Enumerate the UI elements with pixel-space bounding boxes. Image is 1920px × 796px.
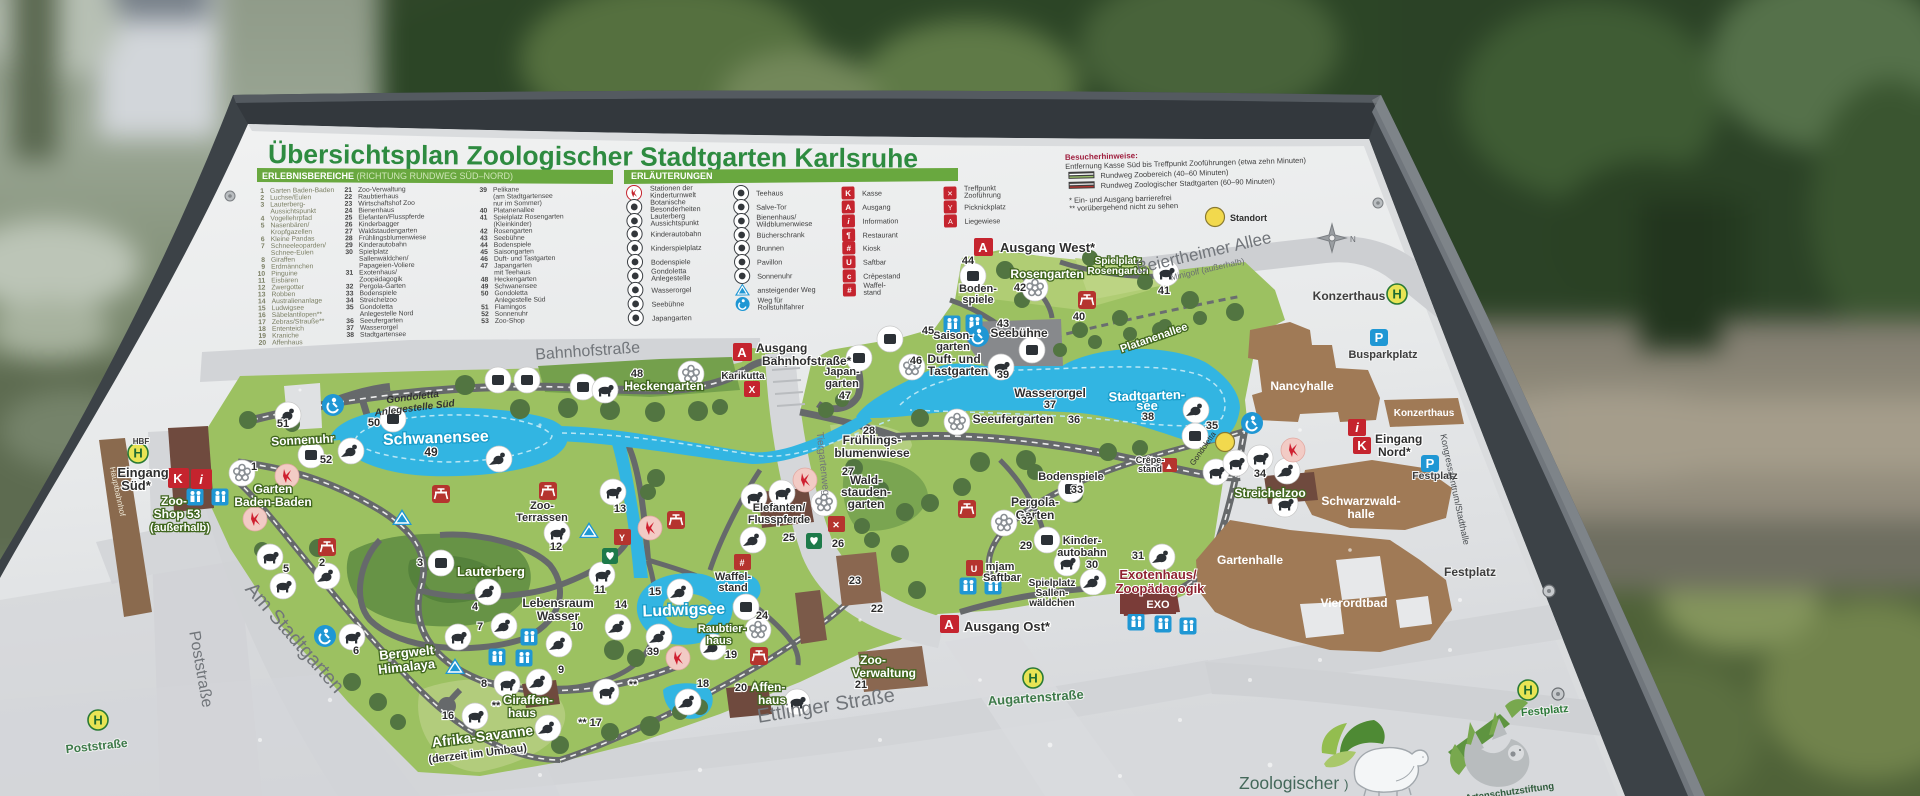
svg-text:41: 41 [480,214,488,221]
svg-text:Karikutta: Karikutta [721,371,765,382]
svg-text:Flusspferde: Flusspferde [748,514,810,526]
svg-text:39: 39 [647,646,659,658]
svg-text:Wildblumenwiese: Wildblumenwiese [756,219,812,229]
svg-text:Crêpestand: Crêpestand [863,271,900,281]
svg-text:45: 45 [922,325,934,337]
svg-text:Zoo-: Zoo- [860,653,886,667]
svg-text:19: 19 [725,649,737,661]
svg-text:Kinderautobahn: Kinderautobahn [651,229,702,239]
svg-text:Stadtgartensee: Stadtgartensee [360,331,406,339]
svg-text:Y: Y [948,205,953,212]
svg-text:HBF: HBF [133,437,150,446]
svg-text:Übersichtsplan Zoologischer St: Übersichtsplan Zoologischer Stadtgarten … [268,139,918,174]
svg-text:**: ** [629,679,638,691]
svg-text:36: 36 [1068,414,1080,426]
svg-text:Japangarten: Japangarten [652,313,692,323]
svg-text:Lauterberg: Lauterberg [457,564,525,579]
svg-text:Zoo-Shop: Zoo-Shop [495,317,525,324]
svg-text:A: A [944,617,954,632]
svg-text:K: K [1357,438,1367,453]
svg-text:50: 50 [368,417,380,429]
svg-text:Aussichtspunkt: Aussichtspunkt [650,218,698,228]
svg-text:Pergola-: Pergola- [1011,495,1059,509]
svg-text:garten: garten [825,378,859,390]
svg-text:Rosengarten: Rosengarten [1010,267,1083,281]
svg-text:Ludwigsee: Ludwigsee [642,601,725,621]
svg-text:#: # [847,244,852,253]
svg-text:35: 35 [346,304,354,311]
svg-text:Standort: Standort [1230,213,1267,223]
svg-text:haus: haus [706,635,732,647]
svg-text:halle: halle [1347,507,1375,521]
svg-text:31: 31 [1132,550,1144,562]
svg-text:22: 22 [871,603,883,615]
svg-text:A: A [845,203,851,212]
svg-text:ERLEBNISBEREICHE (RICHTUNG RUN: ERLEBNISBEREICHE (RICHTUNG RUNDWEG SÜD–N… [262,171,513,181]
svg-text:Lebensraum: Lebensraum [522,596,593,610]
svg-text:P: P [1375,330,1384,345]
svg-text:50: 50 [481,290,489,297]
svg-text:▲: ▲ [1165,461,1174,471]
svg-text:37: 37 [1044,399,1056,411]
svg-text:16: 16 [442,710,454,722]
svg-text:Streichelzoo: Streichelzoo [1234,486,1305,500]
svg-text:43: 43 [997,318,1009,330]
svg-text:U: U [971,564,978,574]
svg-text:haus: haus [508,706,536,720]
svg-text:** 17: ** 17 [578,717,602,729]
svg-text:Verwaltung: Verwaltung [852,666,916,680]
svg-text:46: 46 [910,355,922,367]
svg-text:39: 39 [997,369,1009,381]
svg-text:7: 7 [477,621,483,633]
svg-text:41: 41 [1158,285,1170,297]
svg-text:Zoo-: Zoo- [161,494,187,508]
svg-text:Picknickplatz: Picknickplatz [964,202,1006,212]
svg-text:garten: garten [848,497,885,511]
svg-text:5: 5 [283,563,289,575]
svg-text:¶: ¶ [846,231,851,240]
svg-text:#: # [847,286,852,295]
svg-text:stand: stand [863,288,881,297]
svg-text:28: 28 [863,425,875,437]
svg-text:47: 47 [480,263,488,270]
svg-text:Zoologischer ): Zoologischer ) [1239,773,1348,793]
svg-text:X: X [749,385,756,396]
svg-text:Busparkplatz: Busparkplatz [1348,349,1418,361]
svg-text:7: 7 [261,243,265,250]
svg-text:Ausgang: Ausgang [862,202,891,211]
svg-text:Shop 53: Shop 53 [154,507,201,521]
svg-text:40: 40 [1073,311,1085,323]
svg-text:Brunnen: Brunnen [757,243,784,252]
svg-text:11: 11 [594,584,606,596]
svg-text:Rollstuhlfahrer: Rollstuhlfahrer [758,302,805,312]
svg-text:i: i [199,472,203,487]
svg-text:Nancyhalle: Nancyhalle [1270,379,1334,393]
svg-text:A: A [737,345,747,360]
svg-text:Sonnenuhr: Sonnenuhr [757,271,793,280]
svg-text:38: 38 [1142,411,1154,423]
svg-text:Ausgang Ost*: Ausgang Ost* [964,619,1051,634]
svg-text:Raubtier-: Raubtier- [698,623,747,635]
svg-text:Liegewiese: Liegewiese [964,216,1000,226]
svg-text:Zoo-: Zoo- [530,500,554,512]
svg-text:U: U [846,258,852,267]
svg-text:stand: stand [718,582,747,594]
svg-text:24: 24 [756,610,769,622]
svg-text:9: 9 [558,664,564,676]
svg-text:stand: stand [1138,464,1162,474]
svg-text:8: 8 [481,678,487,690]
svg-text:15: 15 [649,586,661,598]
svg-text:autobahn: autobahn [1057,547,1107,559]
svg-text:blumenwiese: blumenwiese [834,446,910,460]
svg-text:Teehaus: Teehaus [756,188,784,197]
svg-text:32: 32 [1021,515,1033,527]
svg-text:18: 18 [697,678,709,690]
svg-text:5: 5 [261,222,265,229]
svg-text:20: 20 [735,682,747,694]
svg-text:4: 4 [472,601,479,613]
svg-text:Elefanten/: Elefanten/ [753,502,806,514]
svg-text:12: 12 [550,541,562,553]
svg-text:A: A [948,219,953,226]
svg-text:Konzerthaus: Konzerthaus [1394,408,1455,419]
svg-text:K: K [173,471,183,486]
svg-text:1: 1 [251,461,257,473]
svg-text:#: # [739,558,744,568]
svg-text:Zoopädagogik: Zoopädagogik [1116,581,1206,596]
svg-text:Kinderspielplatz: Kinderspielplatz [651,243,702,253]
svg-text:Eingang: Eingang [1375,432,1422,446]
svg-text:Ausgang West*: Ausgang West* [1000,240,1096,255]
svg-text:ERLÄUTERUNGEN: ERLÄUTERUNGEN [631,171,713,181]
svg-text:Affenhaus: Affenhaus [272,339,303,346]
svg-text:26: 26 [832,538,844,550]
svg-text:EXO: EXO [1146,599,1170,611]
svg-text:53: 53 [481,318,489,325]
svg-text:Kasse: Kasse [862,189,882,198]
svg-text:Y: Y [619,533,625,543]
svg-text:Tastgarten: Tastgarten [928,364,988,378]
svg-text:Schwarzwald-: Schwarzwald- [1321,494,1400,508]
svg-text:N: N [1350,235,1356,244]
svg-text:Wasserorgel: Wasserorgel [1014,386,1086,400]
svg-text:Salve-Tor: Salve-Tor [756,202,787,211]
svg-text:20: 20 [259,340,267,347]
svg-text:P: P [1426,456,1435,471]
svg-text:Seeufergarten: Seeufergarten [973,412,1054,426]
svg-text:25: 25 [783,532,795,544]
svg-text:(außerhalb): (außerhalb) [150,522,210,534]
svg-text:spiele: spiele [962,294,993,306]
svg-text:48: 48 [631,368,643,380]
svg-text:Kiosk: Kiosk [863,244,881,253]
svg-text:39: 39 [479,187,487,194]
svg-text:Bodenspiele: Bodenspiele [1038,471,1103,483]
svg-text:A: A [978,240,988,255]
svg-text:34: 34 [1254,468,1267,480]
svg-text:Pavillon: Pavillon [757,257,782,266]
svg-text:14: 14 [615,599,628,611]
svg-text:Heckengarten: Heckengarten [624,379,703,393]
svg-text:ansteigender Weg: ansteigender Weg [757,285,815,295]
svg-text:Terrassen: Terrassen [516,512,568,524]
svg-text:✕: ✕ [947,191,953,198]
svg-text:c: c [847,272,852,281]
svg-text:Saftbar: Saftbar [983,572,1022,584]
svg-text:23: 23 [849,575,861,587]
svg-text:31: 31 [346,270,354,277]
svg-text:3: 3 [260,202,264,209]
svg-text:Information: Information [862,216,898,226]
svg-text:Seebühne: Seebühne [652,299,685,308]
svg-text:Festplatz: Festplatz [1444,565,1496,579]
svg-text:35: 35 [1206,420,1218,432]
svg-text:10: 10 [571,621,583,633]
svg-text:Nord*: Nord* [1378,445,1411,459]
svg-text:Exotenhaus/: Exotenhaus/ [1119,567,1197,582]
svg-text:Wasserorgel: Wasserorgel [651,285,692,295]
svg-text:Restaurant: Restaurant [863,230,898,239]
svg-text:i: i [1355,420,1359,435]
svg-text:42: 42 [1014,282,1026,294]
svg-text:33: 33 [1071,484,1083,496]
svg-text:Süd*: Süd* [121,478,152,493]
svg-text:Affen-: Affen- [751,680,786,694]
svg-text:13: 13 [614,503,626,515]
svg-text:29: 29 [1020,540,1032,552]
svg-text:27: 27 [842,466,854,478]
svg-text:Baden-Baden: Baden-Baden [234,495,311,509]
svg-text:Giraffen-: Giraffen- [503,693,553,707]
svg-text:Bahnhofstraße*: Bahnhofstraße* [762,354,852,368]
svg-text:38: 38 [346,332,354,339]
svg-text:30: 30 [1086,559,1098,571]
svg-text:2: 2 [319,557,325,569]
svg-text:Kinder-: Kinder- [1063,535,1102,547]
svg-text:Ausgang: Ausgang [756,341,807,355]
svg-text:6: 6 [353,645,359,657]
svg-text:Saftbar: Saftbar [863,257,887,266]
svg-text:Bücherschrank: Bücherschrank [757,230,805,240]
svg-text:Zooführung: Zooführung [964,190,1001,200]
svg-text:**: ** [492,700,501,712]
svg-text:3: 3 [417,557,423,569]
svg-text:Garten: Garten [254,482,293,496]
svg-text:✕: ✕ [832,520,840,530]
svg-text:49: 49 [424,445,438,459]
svg-text:wäldchen: wäldchen [1028,598,1075,609]
svg-text:Anlegestelle: Anlegestelle [651,273,690,283]
svg-text:51: 51 [277,418,289,430]
svg-text:Vierordtbad: Vierordtbad [1320,596,1387,610]
svg-text:Gartenhalle: Gartenhalle [1217,553,1283,567]
svg-text:K: K [845,189,851,198]
svg-text:47: 47 [839,390,851,402]
svg-text:44: 44 [962,255,975,267]
svg-text:30: 30 [345,249,353,256]
svg-text:52: 52 [320,454,332,466]
svg-text:Konzerthaus: Konzerthaus [1313,289,1386,303]
